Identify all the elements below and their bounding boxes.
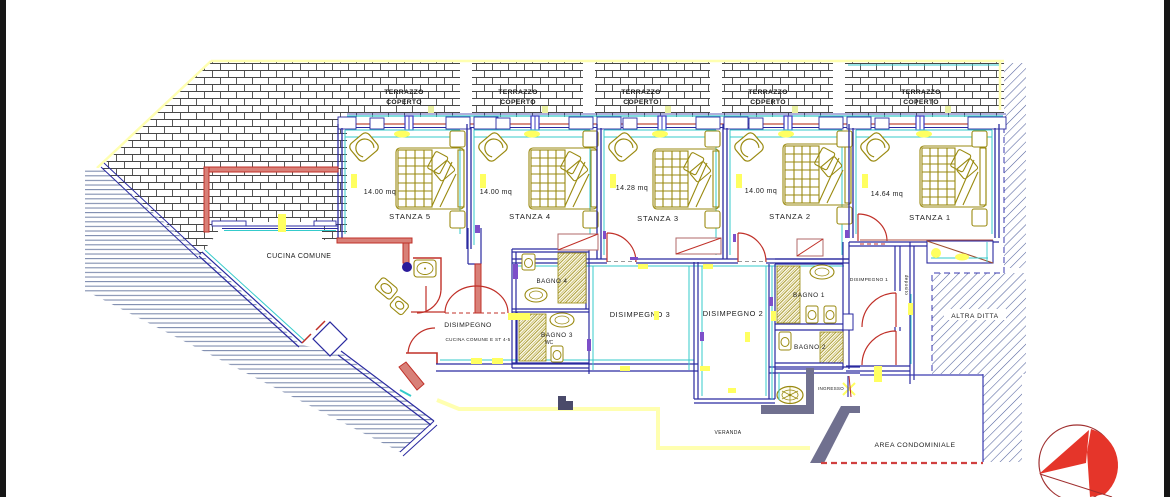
svg-text:14.00 mq: 14.00 mq [480, 189, 512, 196]
svg-text:BAGNO 2: BAGNO 2 [794, 344, 826, 351]
svg-text:CUCINA COMUNE: CUCINA COMUNE [267, 253, 332, 260]
svg-text:VERANDA: VERANDA [715, 430, 742, 436]
svg-text:COPERTO: COPERTO [386, 99, 422, 106]
svg-text:14.00 mq: 14.00 mq [745, 188, 777, 195]
svg-text:STANZA 2: STANZA 2 [769, 212, 811, 221]
svg-text:BAGNO 1: BAGNO 1 [793, 292, 825, 299]
svg-text:STANZA 1: STANZA 1 [909, 213, 951, 222]
svg-text:deposito: deposito [903, 275, 909, 296]
svg-text:DISIMPEGNO 1: DISIMPEGNO 1 [850, 277, 888, 283]
svg-text:BAGNO 4: BAGNO 4 [536, 278, 567, 285]
svg-text:14.64 mq: 14.64 mq [871, 191, 903, 198]
svg-text:STANZA 3: STANZA 3 [637, 214, 679, 223]
svg-text:DISIMPEGNO: DISIMPEGNO [444, 322, 491, 329]
svg-text:STANZA 4: STANZA 4 [509, 212, 551, 221]
svg-text:TERRAZZO: TERRAZZO [498, 89, 537, 96]
svg-text:BAGNO 3: BAGNO 3 [541, 332, 573, 339]
svg-text:TERRAZZO: TERRAZZO [621, 89, 660, 96]
svg-text:DISIMPEGNO 2: DISIMPEGNO 2 [703, 309, 764, 318]
svg-text:TERRAZZO: TERRAZZO [901, 89, 940, 96]
svg-text:CUCINA COMUNE E ST 4-5: CUCINA COMUNE E ST 4-5 [446, 337, 511, 342]
svg-text:14.00 mq: 14.00 mq [364, 189, 396, 196]
svg-text:COPERTO: COPERTO [623, 99, 659, 106]
svg-text:COPERTO: COPERTO [903, 99, 939, 106]
svg-text:TERRAZZO: TERRAZZO [384, 89, 423, 96]
svg-text:COPERTO: COPERTO [500, 99, 536, 106]
svg-text:STANZA 5: STANZA 5 [389, 212, 431, 221]
svg-text:14.28 mq: 14.28 mq [616, 185, 648, 192]
svg-text:AREA CONDOMINIALE: AREA CONDOMINIALE [874, 442, 955, 449]
svg-text:INGRESSO: INGRESSO [818, 386, 844, 391]
svg-text:TERRAZZO: TERRAZZO [748, 89, 787, 96]
svg-text:COPERTO: COPERTO [750, 99, 786, 106]
svg-text:ALTRA DITTA: ALTRA DITTA [951, 313, 998, 320]
svg-text:WC: WC [545, 340, 554, 346]
svg-text:DISIMPEGNO 3: DISIMPEGNO 3 [610, 310, 671, 319]
